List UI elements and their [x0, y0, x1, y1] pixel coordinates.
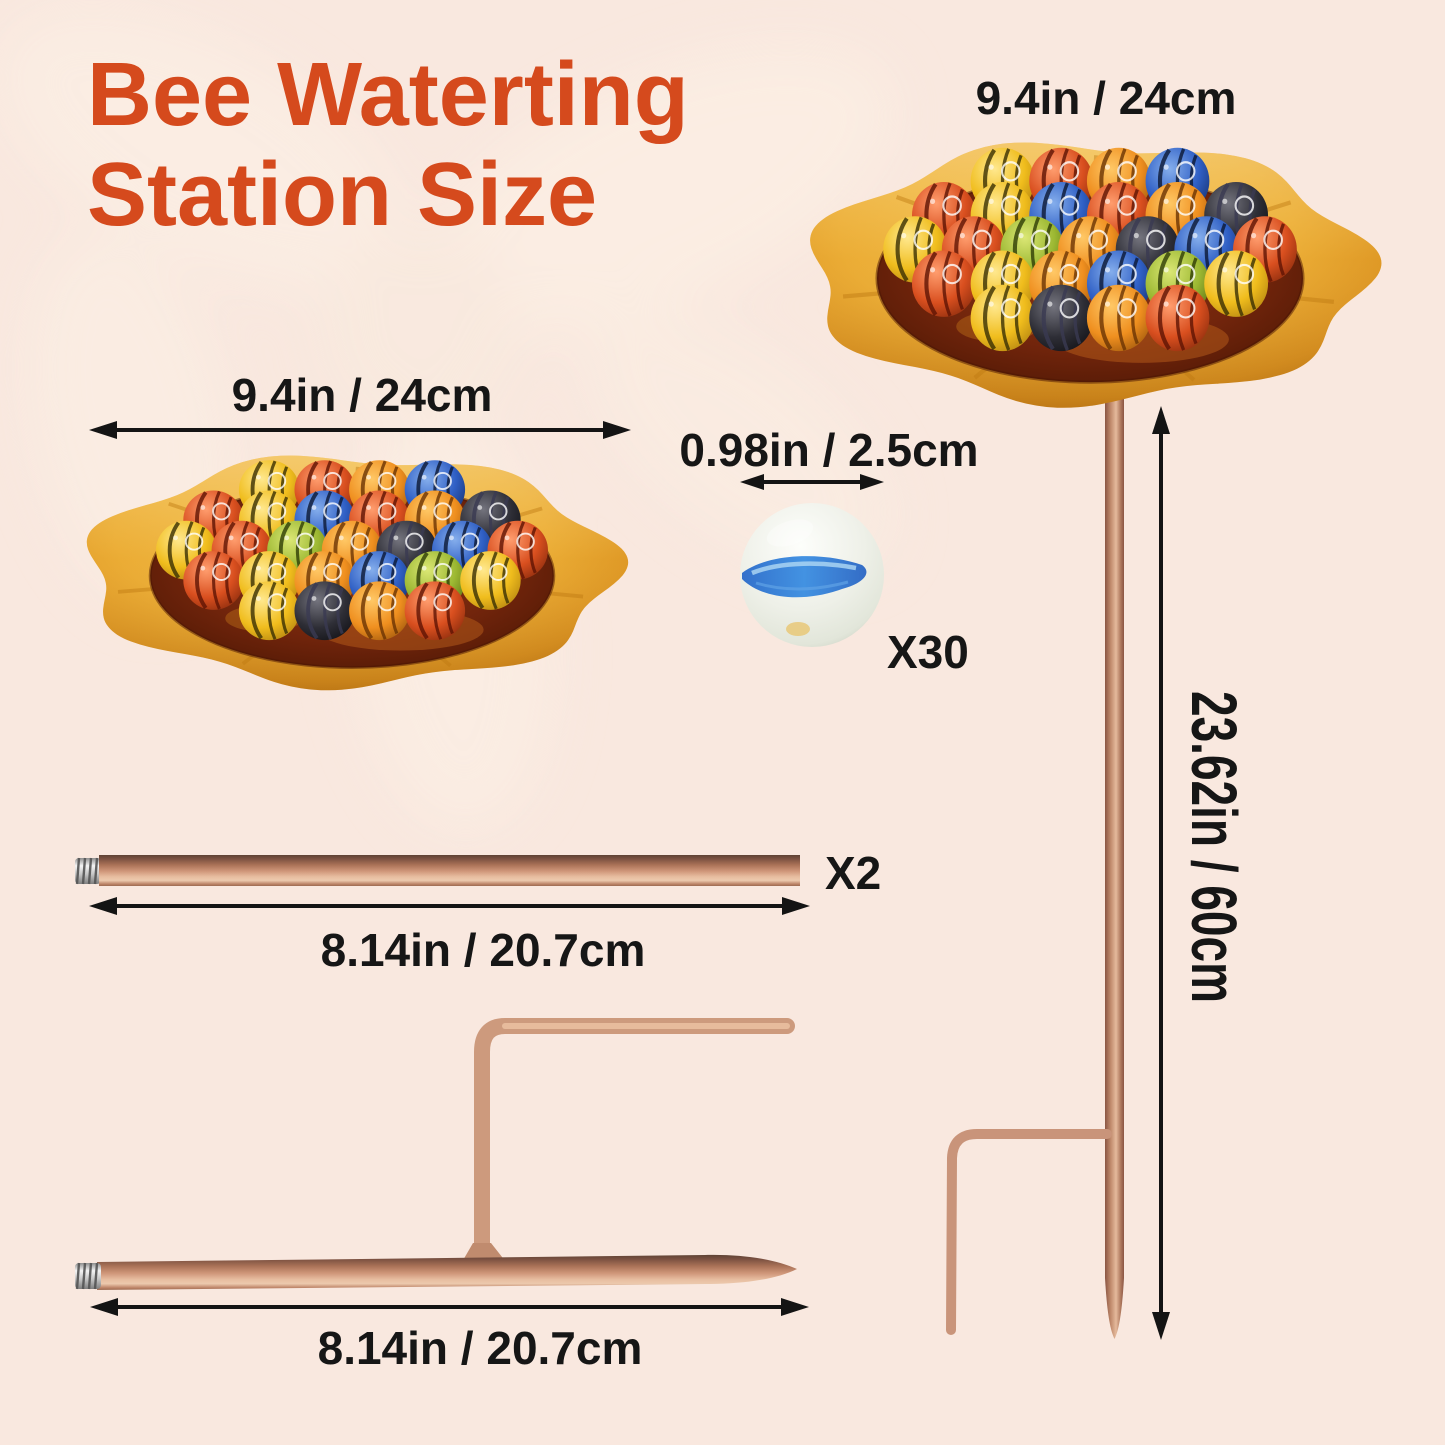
- svg-text:Bee Waterting: Bee Waterting: [87, 45, 689, 145]
- svg-text:9.4in / 24cm: 9.4in / 24cm: [232, 369, 493, 421]
- svg-text:X2: X2: [825, 847, 881, 899]
- svg-text:0.98in / 2.5cm: 0.98in / 2.5cm: [679, 424, 978, 476]
- svg-text:23.62in / 60cm: 23.62in / 60cm: [1178, 691, 1251, 1003]
- svg-text:9.4in / 24cm: 9.4in / 24cm: [976, 72, 1237, 124]
- svg-text:8.14in / 20.7cm: 8.14in / 20.7cm: [321, 924, 646, 976]
- svg-text:Station Size: Station Size: [87, 145, 597, 245]
- svg-text:8.14in / 20.7cm: 8.14in / 20.7cm: [318, 1322, 643, 1374]
- svg-text:X30: X30: [887, 626, 969, 678]
